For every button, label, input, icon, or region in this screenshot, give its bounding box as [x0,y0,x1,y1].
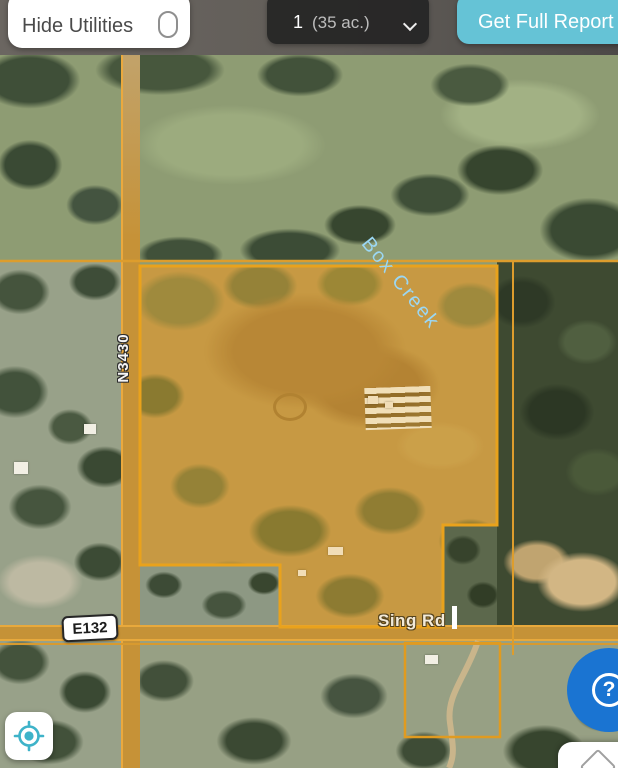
building-roof [298,570,306,576]
route-shield-text: E132 [72,619,108,638]
crosshair-target-icon [13,720,45,752]
question-mark-icon: ? [592,673,618,707]
building-roof [14,462,28,474]
hide-utilities-button[interactable]: Hide Utilities [8,0,190,48]
parcel-index: 1 [293,12,303,33]
parcel-selector-dropdown[interactable]: 1 (35 ac.) [267,0,429,44]
hide-utilities-label: Hide Utilities [22,15,158,38]
map-terrain-north-pasture [0,55,618,262]
poultry-barns [364,386,431,430]
road-overlay-n3430 [121,55,140,768]
top-toolbar: Hide Utilities 1 (35 ac.) Get Full Repor… [0,0,618,55]
building-roof [425,655,438,664]
basemap-switcher-button[interactable] [558,742,618,768]
app-screen: Box Creek N3430 E132 Sing Rd Hide Utilit… [0,0,618,768]
building-roof [385,402,393,408]
satellite-map-canvas[interactable]: Box Creek N3430 E132 Sing Rd [0,55,618,768]
round-pen [273,393,307,421]
route-shield-e132: E132 [61,614,118,643]
parcel-acreage: (35 ac.) [312,13,405,33]
diamond-icon [580,749,617,768]
cursor-ibeam [452,606,457,629]
get-full-report-label: Get Full Report [478,11,614,34]
building-roof [328,547,343,555]
utilities-toggle-checkbox[interactable] [158,11,178,38]
get-full-report-button[interactable]: Get Full Report [457,0,618,44]
map-terrain-west-field [0,262,124,768]
locate-me-button[interactable] [5,712,53,760]
map-terrain-excluded-southwest [124,565,280,627]
map-terrain-east-forest [497,262,618,685]
map-terrain-south-field [124,641,618,768]
building-roof [368,396,378,404]
chevron-down-icon [403,17,417,31]
building-roof [84,424,96,434]
